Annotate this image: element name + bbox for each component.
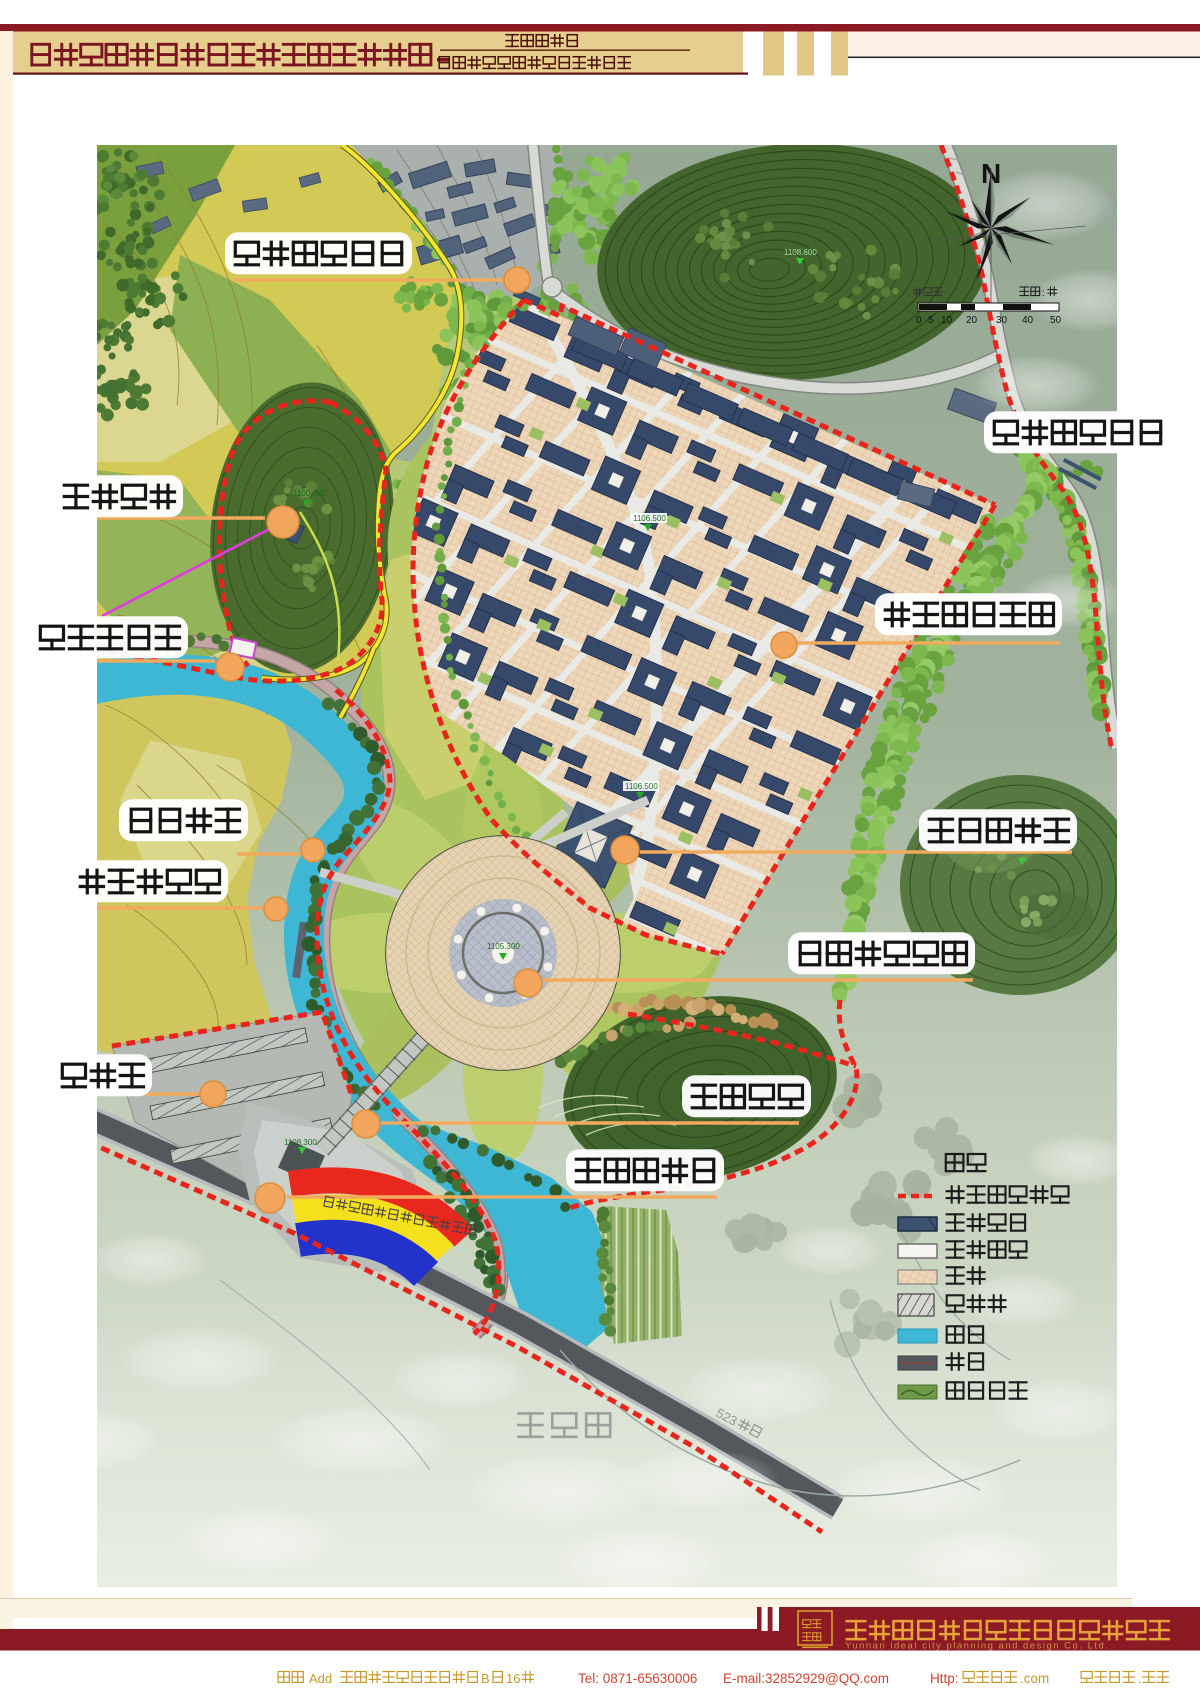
svg-text:.: . [1138,1671,1142,1686]
svg-text:20: 20 [966,315,978,326]
svg-text:16: 16 [506,1671,520,1686]
svg-text:1108.300: 1108.300 [284,1138,317,1147]
svg-text:30: 30 [996,315,1008,326]
svg-text:Tel: 0871-65630006: Tel: 0871-65630006 [578,1671,697,1686]
svg-text:1106.500: 1106.500 [633,514,666,523]
svg-text:B: B [481,1671,490,1686]
svg-text:1105.300: 1105.300 [487,942,520,951]
svg-text:1106.500: 1106.500 [625,782,658,791]
svg-text:10: 10 [941,315,953,326]
svg-text:Yunnan ideal city planning and: Yunnan ideal city planning and design Co… [845,1641,1109,1652]
svg-text:40: 40 [1022,315,1034,326]
svg-text:Http:: Http: [930,1671,959,1686]
svg-text:0: 0 [916,315,922,326]
svg-text:1108.600: 1108.600 [784,248,817,257]
svg-text:1100.000: 1100.000 [293,489,326,498]
svg-text:Add: Add [309,1671,332,1686]
svg-text:.com: .com [1020,1671,1049,1686]
svg-text:5: 5 [928,315,934,326]
svg-text:50: 50 [1050,315,1062,326]
svg-text::: : [1042,288,1045,299]
svg-text:E-mail:32852929@QQ.com: E-mail:32852929@QQ.com [723,1671,889,1686]
